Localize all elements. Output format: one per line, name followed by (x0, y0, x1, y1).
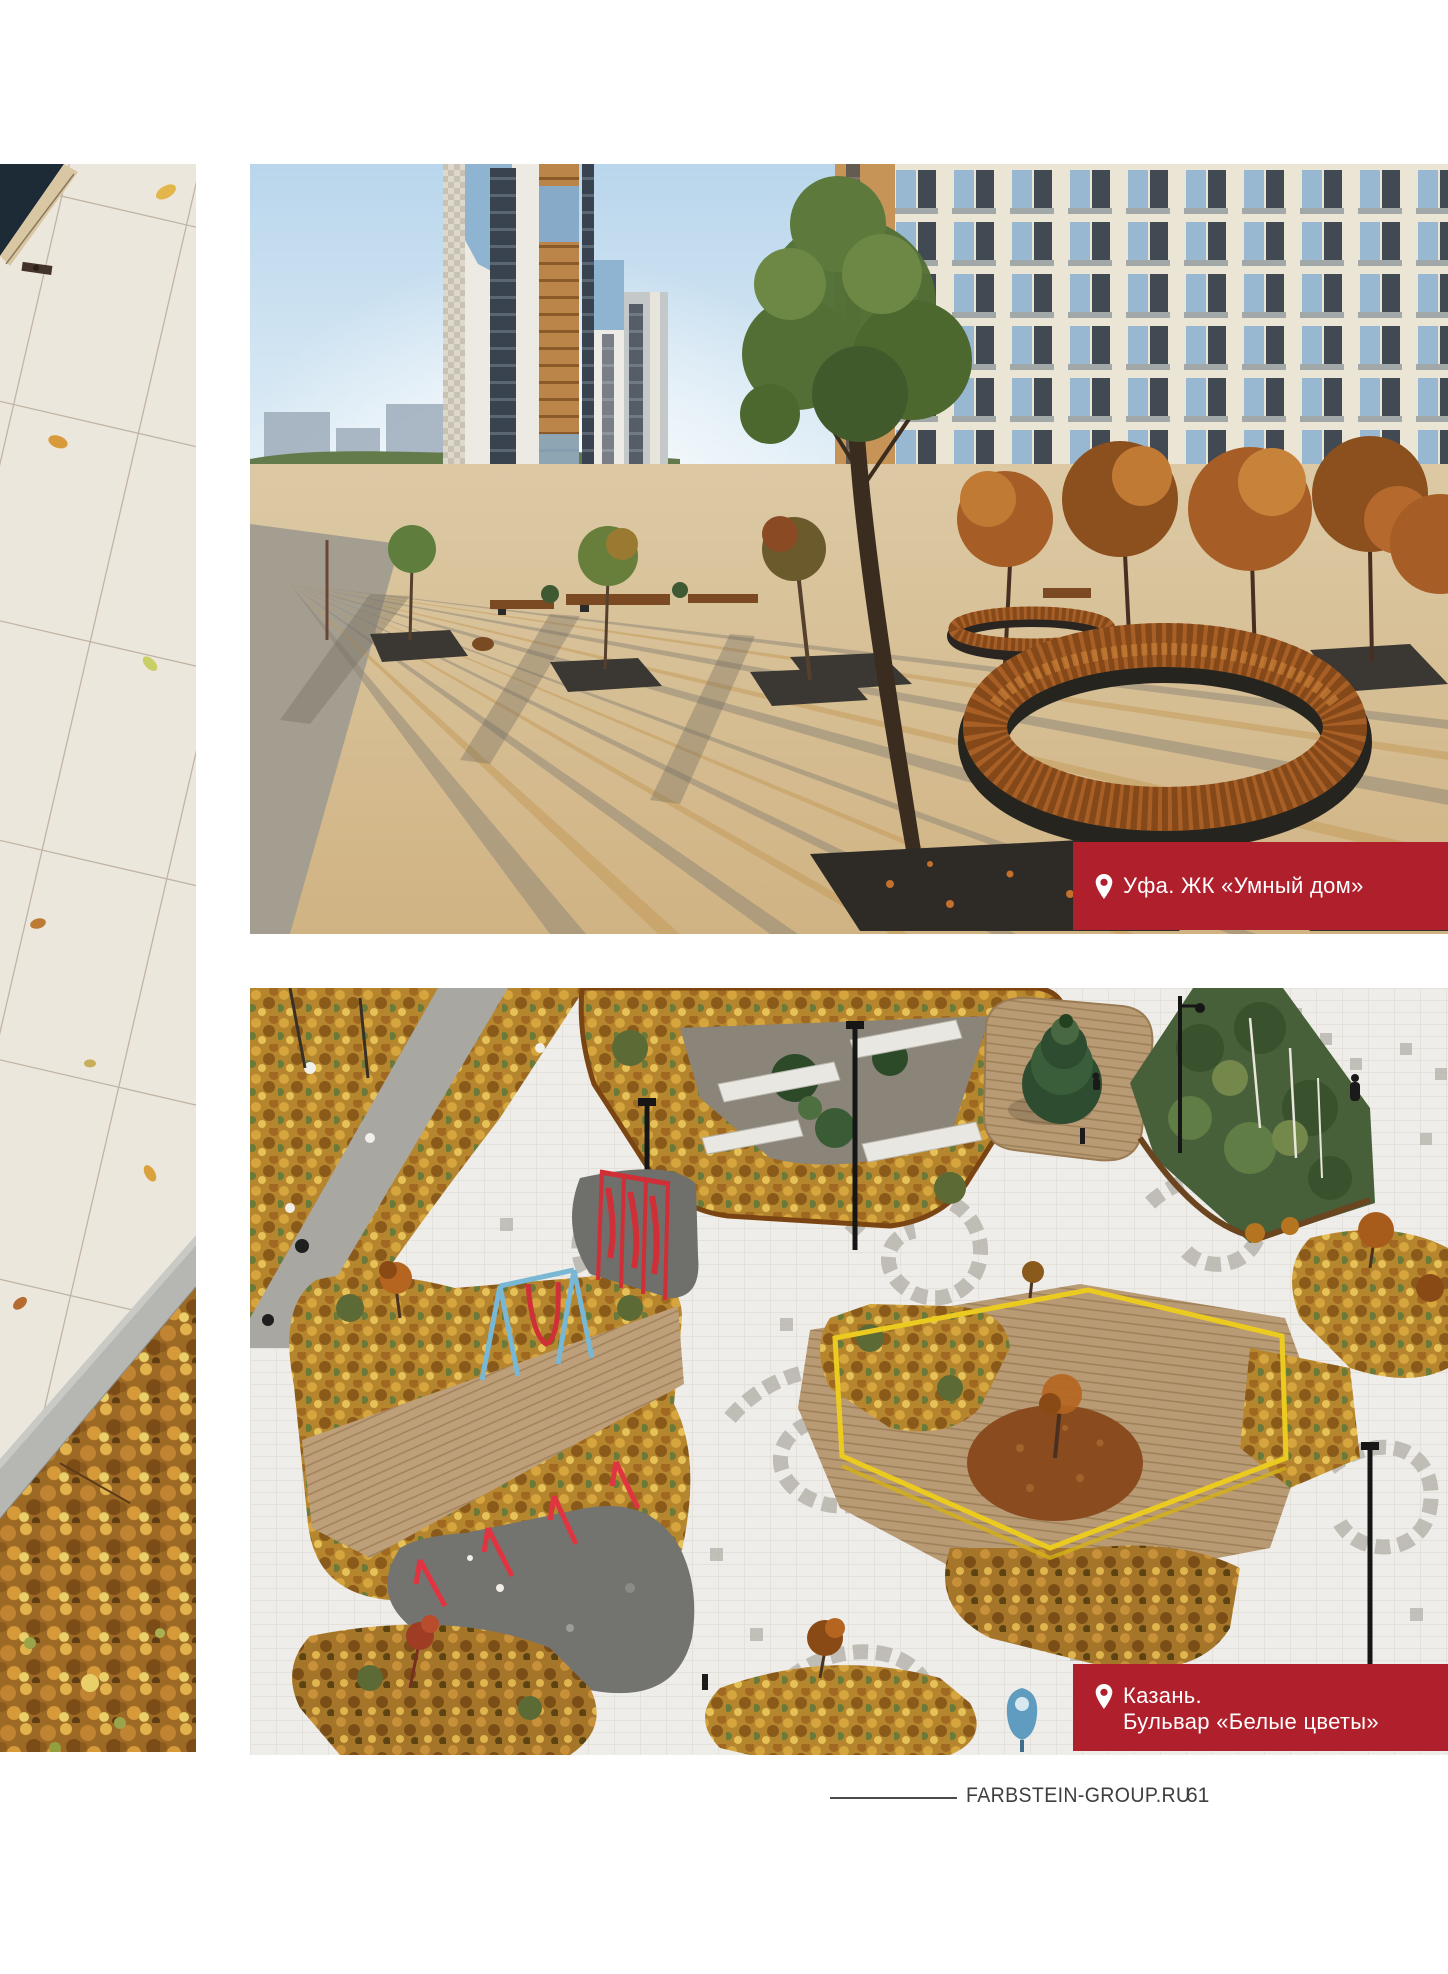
caption-kazan-line1: Казань. (1123, 1683, 1379, 1709)
ufa-plaza-art (250, 164, 1448, 934)
caption-ufa: Уфа. ЖК «Умный дом» (1073, 842, 1448, 930)
small-object (472, 637, 494, 651)
location-pin-icon (1094, 1683, 1114, 1710)
photo-kazan-boulevard: Казань. Бульвар «Белые цветы» (250, 988, 1448, 1755)
caption-kazan-line2: Бульвар «Белые цветы» (1123, 1709, 1379, 1735)
caption-ufa-text: Уфа. ЖК «Умный дом» (1123, 873, 1364, 899)
page-number: 61 (1186, 1784, 1209, 1808)
left-strip-photo (0, 164, 196, 1752)
photo-ufa-plaza: Уфа. ЖК «Умный дом» (250, 164, 1448, 934)
footer-site-url: FARBSTEIN-GROUP.RU (966, 1784, 1190, 1808)
footer-rule (830, 1797, 957, 1799)
pavement-leaves-art (0, 164, 196, 1752)
location-pin-icon (1094, 873, 1114, 900)
pedestrian (1350, 1074, 1360, 1101)
magazine-page: Уфа. ЖК «Умный дом» (0, 0, 1448, 1974)
kazan-boulevard-art (250, 988, 1448, 1755)
spruce-island (984, 998, 1153, 1161)
caption-kazan: Казань. Бульвар «Белые цветы» (1073, 1664, 1448, 1751)
